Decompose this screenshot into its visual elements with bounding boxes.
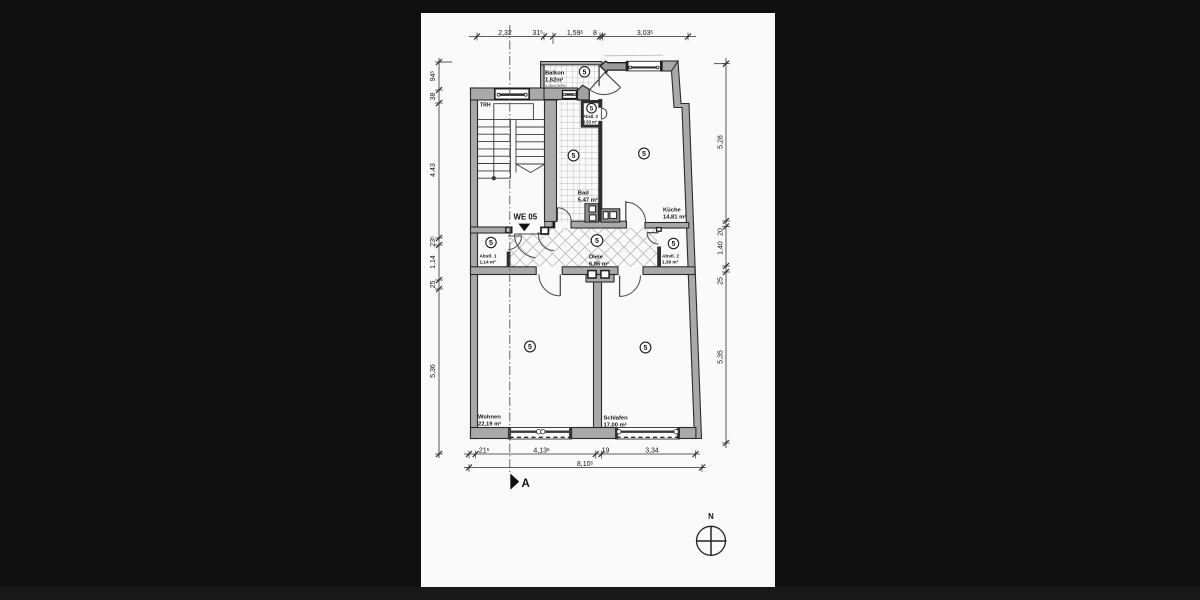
svg-text:Schlafen: Schlafen [604,416,629,422]
svg-text:5: 5 [489,240,493,247]
svg-text:6,86 m²: 6,86 m² [589,261,609,268]
svg-text:3,34: 3,34 [645,447,659,454]
svg-text:14,81 m²: 14,81 m² [663,214,686,221]
svg-text:1,39 m²: 1,39 m² [662,260,679,265]
svg-text:5: 5 [595,238,599,245]
svg-text:Abstl. 3: Abstl. 3 [583,114,599,119]
svg-text:5: 5 [642,151,646,158]
svg-text:25: 25 [718,277,725,285]
svg-text:5,35: 5,35 [718,350,725,364]
svg-text:5,36: 5,36 [430,364,437,378]
svg-text:20: 20 [718,228,725,236]
svg-text:19: 19 [602,447,610,454]
svg-text:5: 5 [583,69,587,76]
svg-text:5: 5 [572,153,576,160]
svg-text:Diele: Diele [589,255,604,261]
svg-text:5: 5 [644,345,648,352]
svg-text:17,00 m²: 17,00 m² [604,422,627,429]
svg-text:Küche: Küche [663,208,681,214]
svg-text:1,14: 1,14 [430,255,437,269]
svg-text:5: 5 [528,344,532,351]
svg-text:5,28: 5,28 [718,135,725,149]
svg-text:5: 5 [672,241,676,248]
svg-text:5: 5 [590,106,594,113]
svg-text:22,19 m²: 22,19 m² [478,420,501,427]
svg-text:8: 8 [593,30,597,37]
svg-text:1,14 m²: 1,14 m² [480,260,497,265]
svg-text:3,24m² (50%): 3,24m² (50%) [545,84,566,88]
svg-text:38: 38 [430,93,437,101]
svg-text:5,47 m²: 5,47 m² [578,197,598,204]
svg-text:A: A [522,478,530,490]
svg-text:1,40: 1,40 [718,241,725,255]
svg-text:1,62m²: 1,62m² [545,77,563,84]
svg-text:N: N [708,512,714,521]
svg-text:Abstl. 1: Abstl. 1 [480,254,497,259]
svg-text:4,43: 4,43 [430,163,437,177]
svg-text:TRH: TRH [480,102,491,108]
svg-text:Balkon: Balkon [545,71,565,77]
svg-text:25: 25 [430,281,437,289]
svg-text:2,32: 2,32 [498,30,512,37]
svg-text:Abstl. 2: Abstl. 2 [662,254,679,259]
svg-text:Bad: Bad [578,191,589,197]
svg-text:WE 05: WE 05 [514,212,538,221]
svg-text:Wohnen: Wohnen [478,414,501,420]
svg-text:0,53 m²: 0,53 m² [583,120,598,125]
